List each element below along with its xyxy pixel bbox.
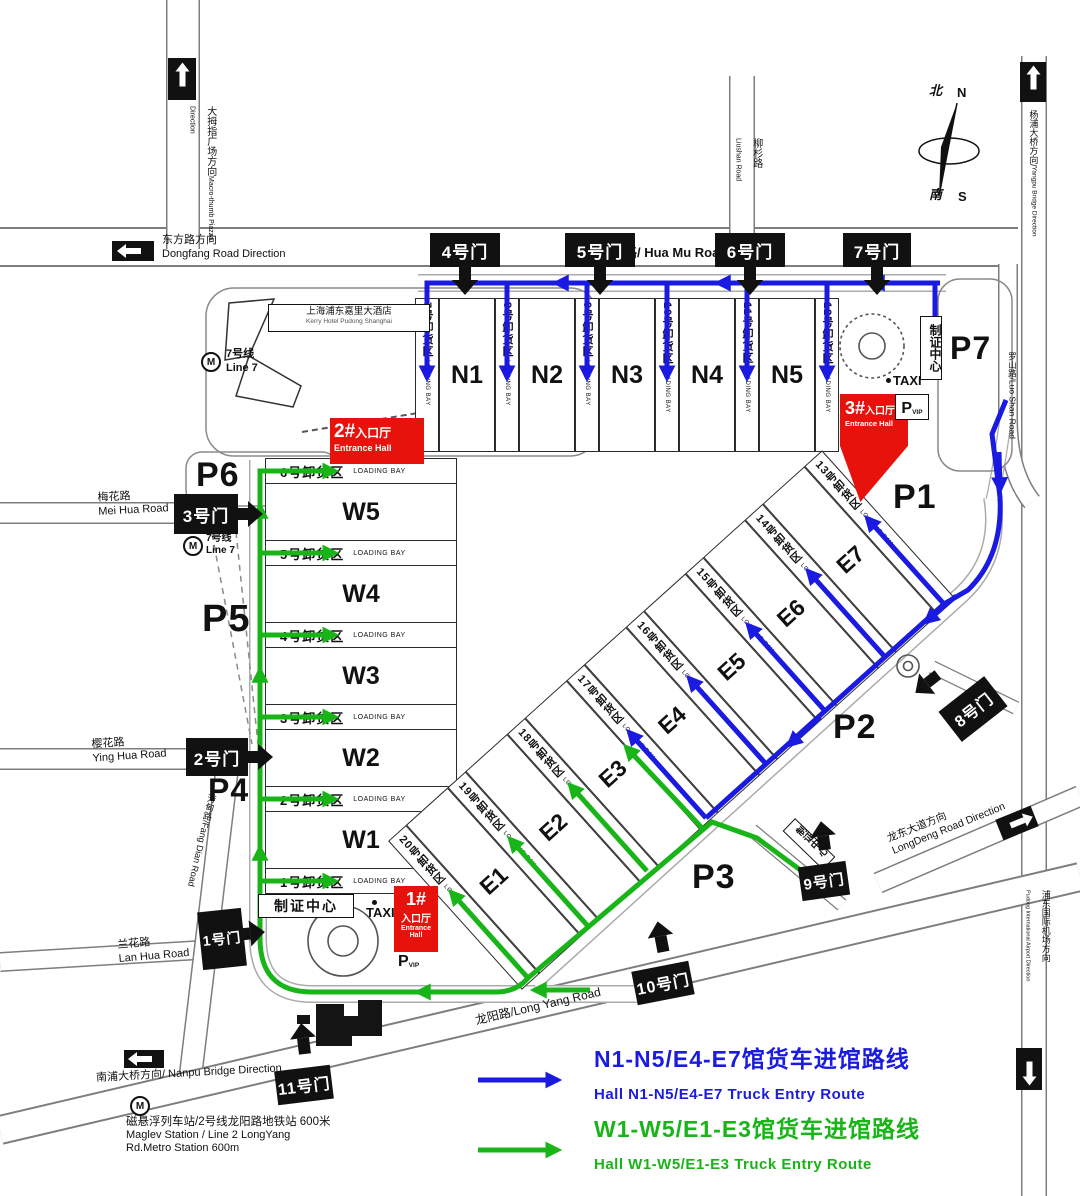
hall-w3: W3 [265, 648, 457, 704]
road-meihua: 梅花路Mei Hua Road [97, 488, 169, 519]
gate-9-arrow-icon [817, 835, 831, 851]
compass-north-en: N [957, 86, 966, 101]
road-luoshan: 罗山路/Luo Shan Road [1003, 352, 1021, 464]
entrance-hall-1: 1# 入口厅 Entrance Hall [394, 886, 438, 952]
vip-parking-south: PVIP [398, 954, 419, 970]
sniec-truck-route-map: 7号卸货区LOADING BAY N1 8号卸货区LOADING BAY N2 … [0, 0, 1080, 1196]
hall-n4: N4 [679, 298, 735, 452]
gate-4-arrow-icon [459, 267, 471, 280]
loading-bay-3: 3号卸货区LOADING BAY [265, 704, 457, 730]
hall-w2: W2 [265, 730, 457, 786]
road-liushan: 柳杉路Liushan Road [728, 138, 765, 238]
gate-11: 11号门 [274, 1065, 334, 1106]
loading-bay-10: 10号卸货区LOADING BAY [655, 298, 679, 452]
loading-bay-12: 12号卸货区LOADING BAY [815, 298, 839, 452]
parking-p7: P7 [950, 330, 991, 367]
metro-logo-icon [130, 1096, 150, 1116]
gate-9: 9号门 [798, 861, 850, 901]
road-yangpu: 杨浦大桥方向/Yangpu Bridge Direction [1024, 110, 1042, 270]
legend-blue-title: N1-N5/E4-E7馆货车进馆路线 [594, 1046, 910, 1072]
gate-7-arrow-icon [871, 267, 883, 280]
hall-w5: W5 [265, 484, 457, 540]
compass-south-en: S [958, 190, 967, 205]
metro-logo-icon [183, 536, 203, 556]
gate-3-arrow-icon [238, 508, 248, 520]
taxi-dot-icon [372, 900, 377, 905]
line7-label-gate3: 7号线Line 7 [206, 533, 235, 557]
loading-bay-9: 9号卸货区LOADING BAY [575, 298, 599, 452]
taxi-label-north: TAXI [893, 374, 922, 389]
gate-11-arrow-icon [297, 1037, 311, 1054]
gate-1-arrow-icon [239, 928, 250, 941]
macrothumb-arrow-icon [168, 58, 196, 100]
hall-n5: N5 [759, 298, 815, 452]
legend-green-title: W1-W5/E1-E3馆货车进馆路线 [594, 1116, 920, 1142]
line7-label-hotel: 7号线Line 7 [226, 348, 258, 376]
compass-icon [919, 103, 979, 196]
gate-2-arrow-icon [248, 751, 258, 763]
parking-p2: P2 [833, 708, 877, 747]
parking-p5: P5 [202, 598, 250, 641]
badge-center-north: 制证中心 [920, 316, 942, 380]
gate-4: 4号门 [430, 233, 500, 267]
compass-south-cn: 南 [929, 188, 942, 203]
loading-bay-5: 5号卸货区LOADING BAY [265, 540, 457, 566]
gate-6-arrow-icon [744, 267, 756, 280]
gate-1: 1号门 [197, 908, 247, 970]
vip-parking-north: PVIP [895, 394, 929, 420]
gate-3: 3号门 [174, 494, 238, 534]
legend-green-subtitle: Hall W1-W5/E1-E3 Truck Entry Route [594, 1156, 872, 1173]
hotel-label: 上海浦东嘉里大酒店 Kerry Hotel Pudong Shanghai [268, 304, 430, 332]
badge-center-west: 制证中心 [258, 894, 354, 918]
gate-5: 5号门 [565, 233, 635, 267]
road-yinghua: 樱花路Ying Hua Road [91, 733, 167, 766]
road-airport: 浦东国际机场方向Pudong International Airport Dir… [1018, 890, 1055, 1010]
dongfang-arrow-icon [112, 241, 154, 261]
hall-n2: N2 [519, 298, 575, 452]
airport-arrow-icon [1016, 1048, 1042, 1090]
loading-bay-11: 11号卸货区LOADING BAY [735, 298, 759, 452]
taxi-dot-icon [886, 378, 891, 383]
gate-6: 6号门 [715, 233, 785, 267]
yangpu-arrow-icon [1020, 62, 1046, 102]
hall-n1: N1 [439, 298, 495, 452]
north-hall-band: 7号卸货区LOADING BAY N1 8号卸货区LOADING BAY N2 … [415, 298, 839, 452]
loading-bay-8: 8号卸货区LOADING BAY [495, 298, 519, 452]
road-macrothumb: 大拇指广场方向Macro-thumb Piazza Direction [182, 106, 219, 244]
taxi-label-south: TAXI [366, 906, 395, 921]
road-dongfang: 东方路方向Dongfang Road Direction [162, 234, 286, 262]
hall-w4: W4 [265, 566, 457, 622]
compass-north-cn: 北 [929, 84, 942, 99]
parking-p1: P1 [893, 478, 937, 517]
hall-n3: N3 [599, 298, 655, 452]
loading-bay-4: 4号卸货区LOADING BAY [265, 622, 457, 648]
gate-2: 2号门 [186, 738, 248, 776]
maglev-station-label: 磁悬浮列车站/2号线龙阳路地铁站 600米 Maglev Station / L… [126, 1116, 330, 1155]
parking-p3: P3 [692, 858, 736, 897]
nanpu-arrow-icon [124, 1050, 164, 1068]
gate-7: 7号门 [843, 233, 911, 267]
legend-blue-subtitle: Hall N1-N5/E4-E7 Truck Entry Route [594, 1086, 865, 1103]
parking-p6: P6 [196, 456, 240, 495]
gate-5-arrow-icon [594, 267, 606, 280]
metro-logo-icon [201, 352, 221, 372]
entrance-hall-2: 2#入口厅 Entrance Hall [330, 418, 424, 464]
